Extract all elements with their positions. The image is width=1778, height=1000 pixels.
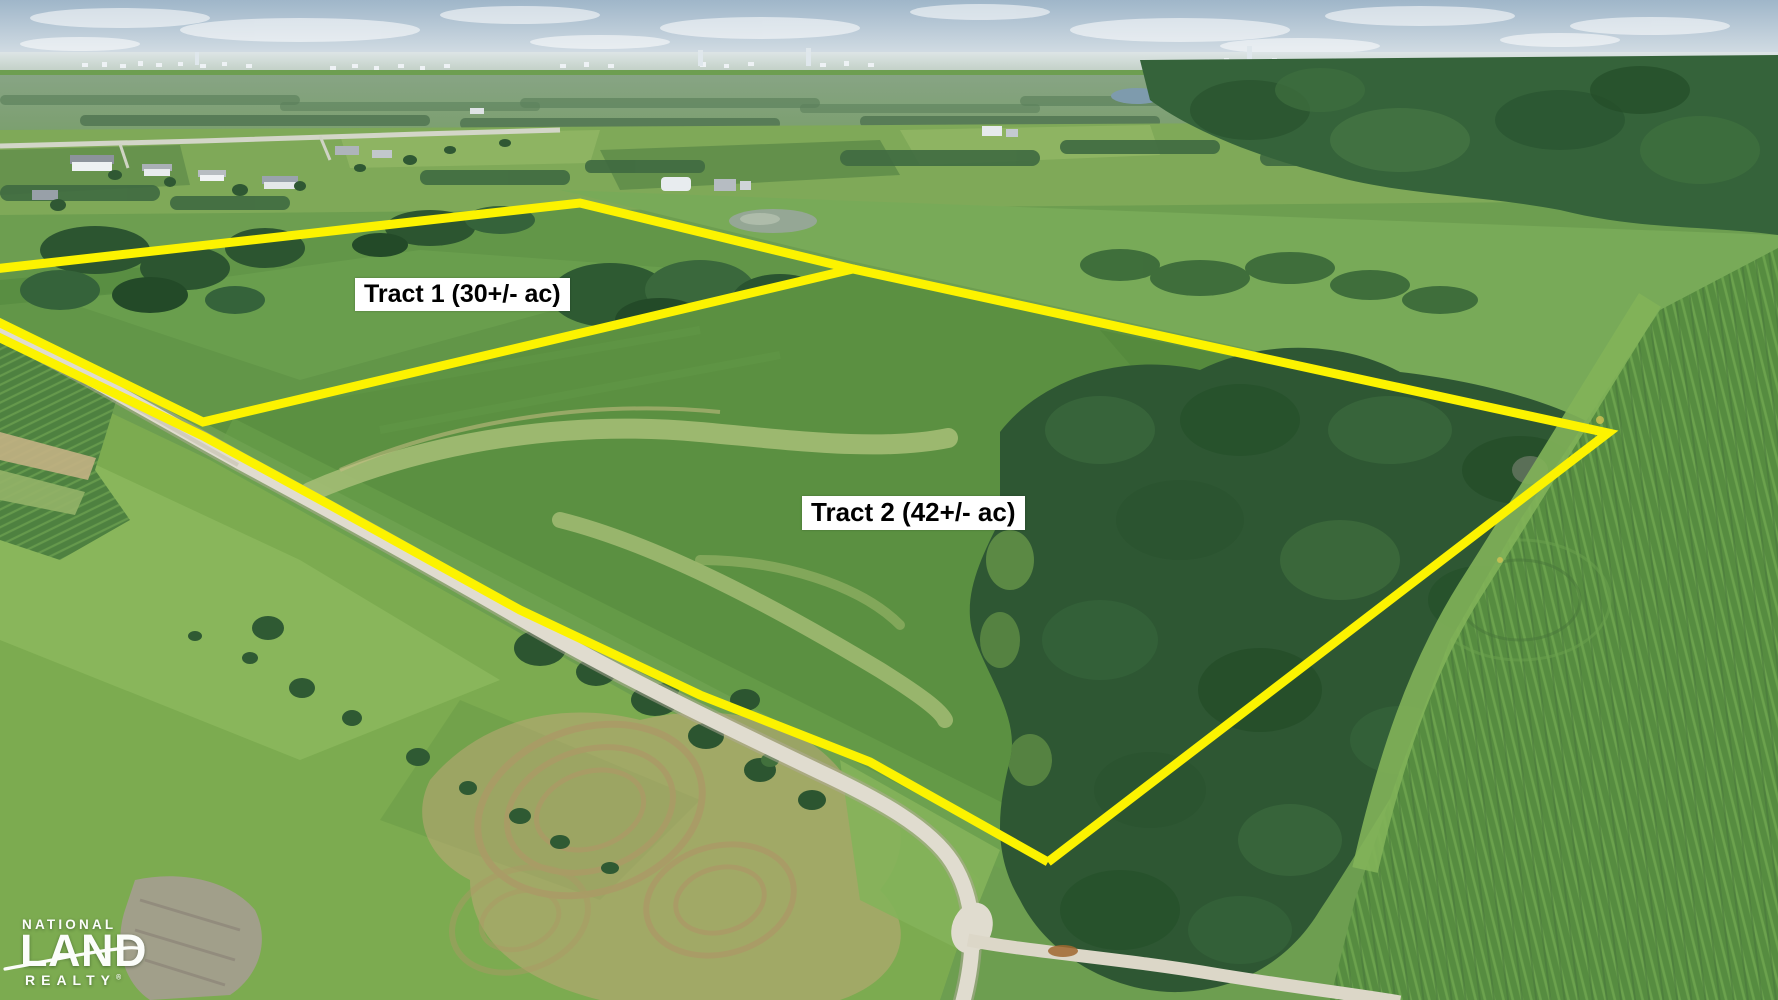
logo-realty-text: REALTY® bbox=[25, 972, 170, 988]
tract1-label: Tract 1 (30+/- ac) bbox=[355, 278, 570, 311]
aerial-listing-photo: Tract 1 (30+/- ac) Tract 2 (42+/- ac) NA… bbox=[0, 0, 1778, 1000]
brand-logo: NATIONAL LAND REALTY® bbox=[20, 917, 170, 988]
tract2-label: Tract 2 (42+/- ac) bbox=[802, 496, 1025, 530]
logo-swoosh-icon bbox=[4, 945, 144, 973]
dirt-spot bbox=[1048, 945, 1078, 957]
registered-mark: ® bbox=[116, 974, 121, 981]
